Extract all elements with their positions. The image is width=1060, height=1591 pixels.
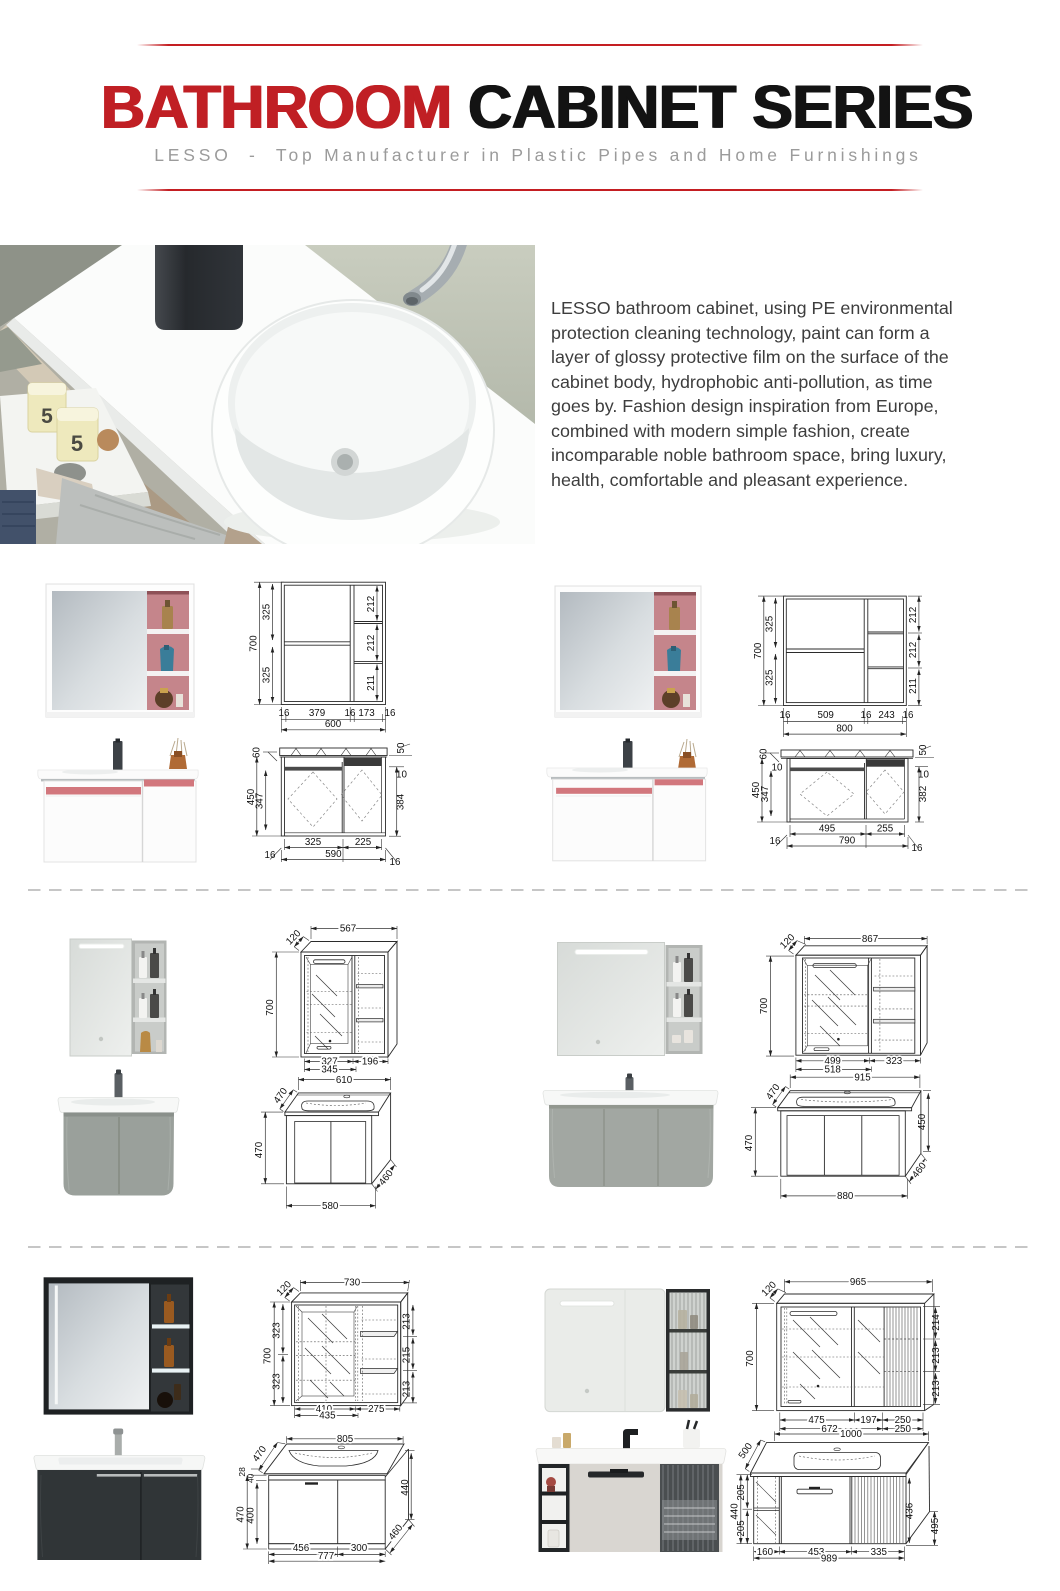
- svg-text:160: 160: [757, 1547, 774, 1558]
- svg-text:440: 440: [400, 1479, 411, 1496]
- svg-text:213: 213: [931, 1347, 942, 1364]
- svg-text:777: 777: [318, 1551, 334, 1562]
- svg-text:211: 211: [366, 675, 377, 691]
- svg-text:460: 460: [387, 1522, 406, 1542]
- svg-text:700: 700: [745, 1350, 756, 1367]
- svg-text:470: 470: [744, 1134, 755, 1151]
- svg-text:323: 323: [886, 1056, 903, 1067]
- svg-text:470: 470: [272, 1086, 291, 1106]
- svg-text:60: 60: [759, 748, 770, 759]
- svg-text:173: 173: [358, 708, 375, 719]
- svg-text:16: 16: [912, 843, 923, 854]
- svg-text:456: 456: [293, 1543, 310, 1554]
- svg-text:120: 120: [760, 1279, 780, 1299]
- svg-text:16: 16: [265, 850, 276, 861]
- svg-text:335: 335: [871, 1547, 888, 1558]
- svg-text:460: 460: [910, 1160, 929, 1180]
- svg-text:205: 205: [736, 1520, 747, 1537]
- svg-text:16: 16: [903, 710, 914, 721]
- svg-text:435: 435: [319, 1411, 336, 1422]
- svg-text:347: 347: [760, 786, 771, 802]
- svg-text:700: 700: [753, 642, 764, 659]
- svg-text:197: 197: [860, 1415, 876, 1426]
- svg-text:16: 16: [279, 708, 290, 719]
- svg-text:495: 495: [819, 824, 836, 835]
- svg-text:790: 790: [839, 836, 856, 847]
- svg-text:213: 213: [402, 1380, 413, 1397]
- svg-text:867: 867: [862, 934, 878, 945]
- svg-text:384: 384: [396, 793, 407, 810]
- svg-text:965: 965: [850, 1277, 867, 1288]
- svg-text:196: 196: [362, 1057, 379, 1068]
- svg-text:600: 600: [325, 719, 342, 730]
- svg-text:1000: 1000: [840, 1429, 862, 1440]
- svg-text:700: 700: [249, 635, 260, 652]
- svg-text:5: 5: [71, 431, 83, 456]
- svg-text:400: 400: [246, 1507, 257, 1524]
- svg-text:730: 730: [344, 1278, 361, 1289]
- svg-text:518: 518: [825, 1065, 842, 1076]
- svg-text:500: 500: [737, 1441, 756, 1461]
- svg-text:255: 255: [877, 824, 894, 835]
- svg-text:470: 470: [254, 1141, 265, 1158]
- svg-text:590: 590: [325, 849, 342, 860]
- svg-text:509: 509: [818, 710, 834, 721]
- svg-text:450: 450: [917, 1113, 928, 1130]
- svg-text:347: 347: [255, 793, 266, 809]
- svg-text:470: 470: [764, 1082, 783, 1102]
- svg-text:323: 323: [272, 1373, 283, 1390]
- svg-text:215: 215: [402, 1346, 413, 1363]
- svg-text:16: 16: [770, 836, 781, 847]
- svg-text:10: 10: [396, 770, 407, 781]
- svg-text:700: 700: [759, 997, 770, 1014]
- svg-text:225: 225: [355, 837, 372, 848]
- svg-text:16: 16: [390, 857, 401, 868]
- svg-text:213: 213: [402, 1313, 413, 1330]
- svg-text:440: 440: [730, 1503, 741, 1520]
- svg-text:325: 325: [262, 666, 273, 683]
- svg-text:212: 212: [366, 635, 377, 651]
- svg-text:212: 212: [366, 596, 377, 612]
- svg-text:16: 16: [385, 708, 396, 719]
- svg-text:460: 460: [377, 1168, 396, 1188]
- svg-text:580: 580: [322, 1201, 339, 1212]
- svg-text:10: 10: [772, 763, 783, 774]
- svg-text:610: 610: [336, 1075, 353, 1086]
- svg-text:989: 989: [821, 1553, 837, 1564]
- svg-text:50: 50: [396, 742, 407, 753]
- svg-text:325: 325: [305, 837, 322, 848]
- svg-text:16: 16: [780, 710, 791, 721]
- svg-text:323: 323: [272, 1322, 283, 1339]
- svg-text:379: 379: [309, 708, 325, 719]
- svg-text:16: 16: [345, 708, 356, 719]
- svg-text:672: 672: [821, 1424, 837, 1435]
- svg-text:700: 700: [265, 999, 276, 1016]
- svg-text:50: 50: [918, 744, 929, 755]
- svg-text:567: 567: [340, 924, 356, 935]
- svg-text:250: 250: [895, 1424, 912, 1435]
- svg-text:800: 800: [836, 723, 853, 734]
- svg-text:243: 243: [878, 710, 895, 721]
- svg-text:120: 120: [275, 1279, 295, 1299]
- svg-text:214: 214: [931, 1314, 942, 1331]
- svg-text:325: 325: [765, 669, 776, 686]
- svg-text:213: 213: [931, 1380, 942, 1397]
- svg-text:325: 325: [765, 615, 776, 632]
- svg-text:470: 470: [251, 1444, 270, 1464]
- svg-text:5: 5: [41, 405, 53, 428]
- svg-text:915: 915: [854, 1072, 871, 1083]
- svg-text:495: 495: [930, 1517, 941, 1534]
- svg-text:10: 10: [918, 770, 929, 781]
- svg-text:212: 212: [908, 642, 919, 658]
- svg-text:40: 40: [245, 1473, 255, 1483]
- svg-text:436: 436: [905, 1502, 916, 1519]
- svg-text:300: 300: [351, 1543, 368, 1554]
- svg-text:382: 382: [918, 786, 929, 802]
- svg-text:16: 16: [861, 710, 872, 721]
- svg-text:120: 120: [284, 928, 304, 948]
- svg-text:880: 880: [837, 1191, 854, 1202]
- svg-text:700: 700: [263, 1347, 274, 1364]
- svg-text:325: 325: [262, 603, 273, 620]
- svg-text:205: 205: [736, 1484, 747, 1501]
- svg-text:211: 211: [908, 678, 919, 694]
- svg-text:212: 212: [908, 607, 919, 623]
- svg-text:120: 120: [778, 932, 798, 952]
- svg-text:275: 275: [368, 1404, 385, 1415]
- svg-text:60: 60: [252, 747, 263, 758]
- svg-text:805: 805: [337, 1434, 354, 1445]
